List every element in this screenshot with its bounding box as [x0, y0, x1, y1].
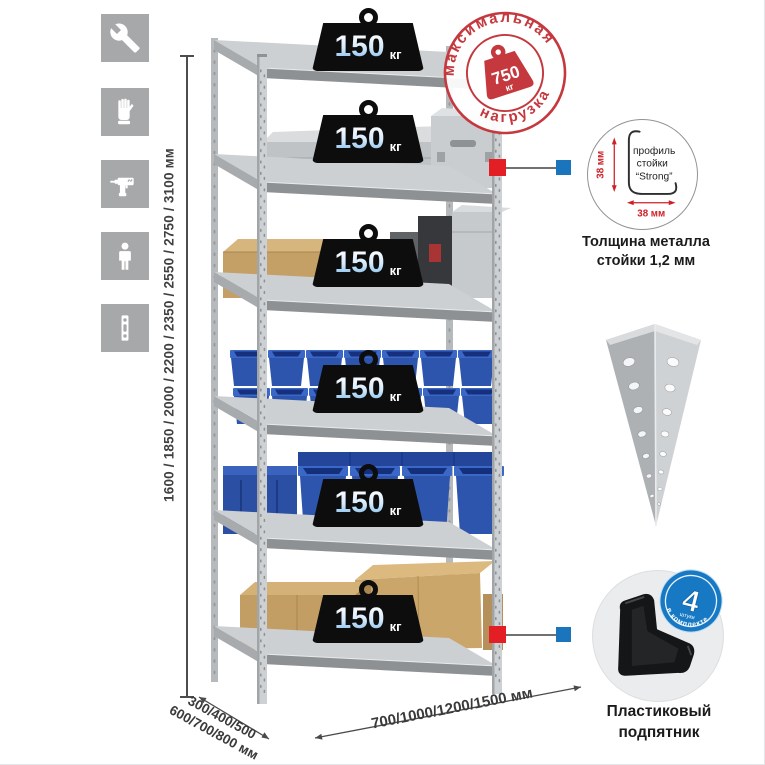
callout-marker-blue-bottom — [556, 627, 571, 642]
profile-caption-line2: стойки 1,2 мм — [570, 252, 722, 271]
rack-post-icon — [101, 304, 149, 352]
shelf-load-badge-5: 150кг — [312, 464, 424, 527]
callout-marker-red-bottom — [489, 626, 506, 643]
foot-caption-line2: подпятник — [584, 722, 734, 743]
load-unit: кг — [390, 503, 402, 518]
height-dimension-label: 1600 / 1850 / 2000 / 2200 / 2350 / 2550 … — [162, 148, 177, 502]
foot-caption-line1: Пластиковый — [584, 701, 734, 722]
max-load-stamp: максимальная нагрузка 750 кг — [438, 6, 572, 140]
shelf-load-badge-3: 150кг — [312, 224, 424, 287]
load-value: 150 — [335, 595, 385, 643]
profile-label-2: стойки — [637, 159, 668, 170]
load-unit: кг — [390, 619, 402, 634]
profile-dim-bottom: 38 мм — [637, 208, 665, 219]
load-value: 150 — [335, 239, 385, 287]
gloves-icon — [101, 88, 149, 136]
wrench-icon — [101, 14, 149, 62]
load-unit: кг — [390, 389, 402, 404]
callout-marker-blue-top — [556, 160, 571, 175]
load-unit: кг — [390, 47, 402, 62]
profile-caption: Толщина металла стойки 1,2 мм — [570, 233, 722, 271]
drill-icon — [101, 160, 149, 208]
load-value: 150 — [335, 479, 385, 527]
callout-line-top — [498, 167, 560, 169]
callout-marker-red-top — [489, 159, 506, 176]
load-unit: кг — [390, 139, 402, 154]
profile-dim-side: 38 мм — [596, 151, 607, 179]
post-profile-detail: 38 мм профиль стойки “Strong” 38 мм — [587, 119, 698, 230]
person-icon — [101, 232, 149, 280]
profile-caption-line1: Толщина металла — [570, 233, 722, 252]
angle-post-image — [598, 300, 718, 535]
profile-label-3: “Strong” — [636, 171, 673, 182]
foot-caption: Пластиковый подпятник — [584, 701, 734, 743]
shelf-load-badge-6: 150кг — [312, 580, 424, 643]
callout-line-bottom — [498, 634, 560, 636]
load-value: 150 — [335, 23, 385, 71]
load-value: 150 — [335, 115, 385, 163]
load-value: 150 — [335, 365, 385, 413]
load-unit: кг — [390, 263, 402, 278]
shelf-load-badge-1: 150кг — [312, 8, 424, 71]
shelf-load-badge-4: 150кг — [312, 350, 424, 413]
profile-label-1: профиль — [633, 145, 675, 157]
shelf-load-badge-2: 150кг — [312, 100, 424, 163]
product-promo-page: 1600 / 1850 / 2000 / 2200 / 2350 / 2550 … — [0, 0, 765, 765]
